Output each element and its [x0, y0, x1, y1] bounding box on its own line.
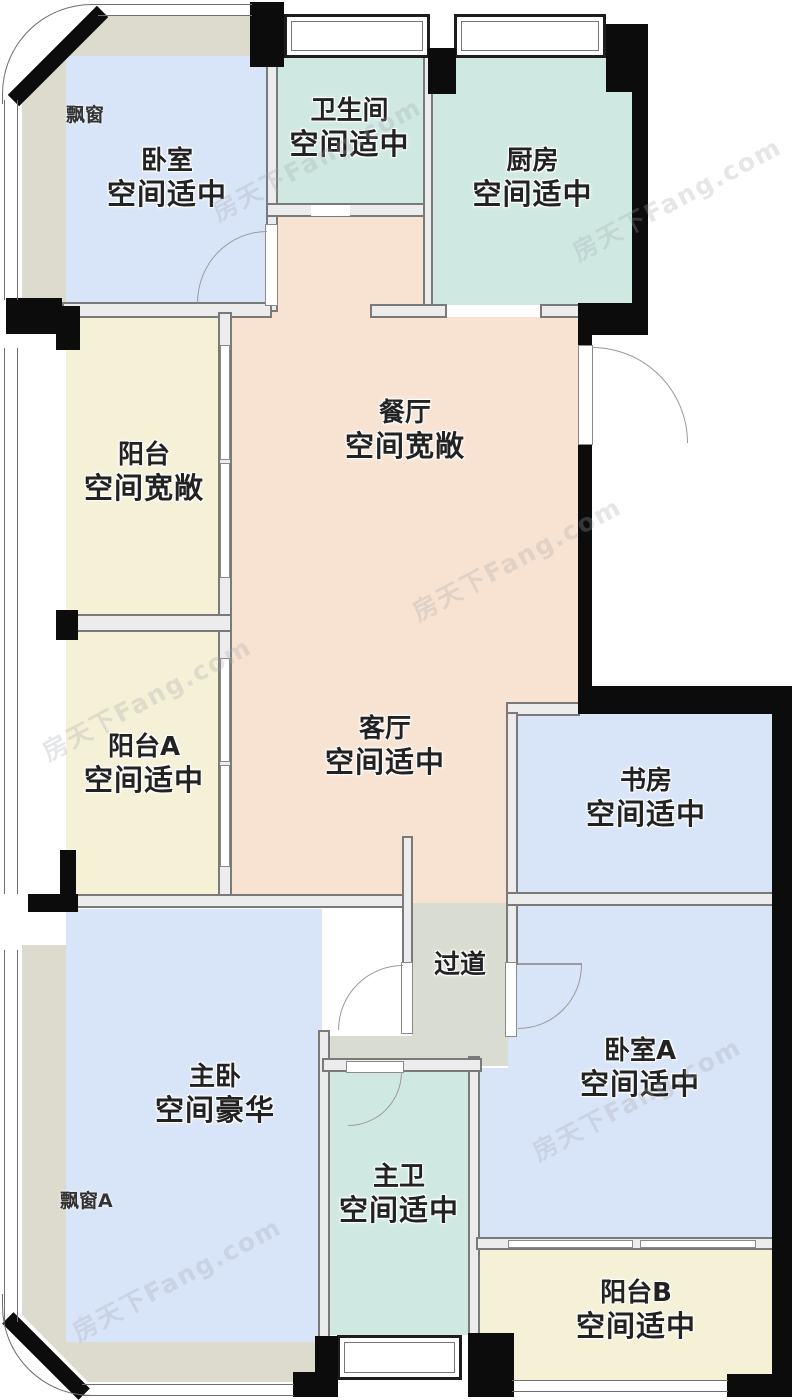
wall-segment-black — [578, 686, 792, 714]
room-name: 过道 — [408, 950, 512, 981]
wall-segment-black — [56, 610, 78, 640]
room-desc: 空间适中 — [514, 1309, 758, 1344]
window — [454, 14, 606, 58]
door-arc — [592, 347, 688, 443]
wall-segment — [62, 614, 232, 632]
room-name: 主卫 — [330, 1162, 468, 1193]
room-kitchen-label: 厨房 空间适中 — [433, 146, 632, 212]
room-desc: 空间适中 — [433, 177, 632, 212]
room-desc: 空间宽敞 — [250, 429, 560, 464]
wall-segment-black — [60, 850, 76, 898]
wall-segment — [62, 894, 405, 908]
wall-segment-black — [632, 60, 648, 310]
room-desc: 空间适中 — [66, 763, 222, 798]
window — [337, 1335, 462, 1380]
window-rail — [98, 4, 252, 16]
room-master-label: 主卧 空间豪华 — [90, 1062, 340, 1128]
room-name: 主卧 — [90, 1062, 340, 1093]
door-opening — [311, 205, 350, 216]
wall-segment — [62, 302, 272, 318]
room-living-label: 客厅 空间适中 — [240, 714, 530, 780]
wall-segment-black — [56, 306, 80, 350]
wall-segment-black — [772, 710, 792, 1252]
bay-window-a-note: 飘窗A — [60, 1186, 200, 1213]
room-desc: 空间豪华 — [90, 1093, 340, 1128]
bay-window-note: 飘窗 — [66, 100, 186, 127]
wall-segment-black — [727, 1374, 792, 1397]
room-name: 卧室 — [66, 146, 268, 177]
room-desc: 空间适中 — [500, 1067, 780, 1102]
room-master-bath-label: 主卫 空间适中 — [330, 1162, 468, 1228]
window — [640, 1240, 756, 1248]
room-desc: 空间适中 — [276, 127, 423, 162]
room-desc: 空间适中 — [330, 1193, 468, 1228]
wall-segment-black — [468, 1333, 514, 1397]
room-dining-label: 餐厅 空间宽敞 — [250, 398, 560, 464]
room-desc: 空间适中 — [240, 745, 530, 780]
room-name: 阳台 — [66, 440, 222, 471]
room-name: 餐厅 — [250, 398, 560, 429]
wall-segment-black — [250, 2, 284, 67]
wall-segment — [540, 304, 580, 318]
window-rail — [512, 1380, 728, 1392]
door-arc — [338, 965, 403, 1030]
floor-plan: 卧室 空间适中 卫生间 空间适中 厨房 空间适中 餐厅 空间宽敞 阳台 空间宽敞… — [0, 0, 796, 1400]
corner-window-arc — [2, 1294, 98, 1396]
wall-segment-black — [578, 441, 592, 700]
window — [508, 1240, 633, 1248]
room-name: 厨房 — [433, 146, 632, 177]
room-name: 卫生间 — [276, 96, 423, 127]
room-bathroom-label: 卫生间 空间适中 — [276, 96, 423, 162]
room-balcony-a-label: 阳台A 空间适中 — [66, 732, 222, 798]
room-name: 书房 — [518, 766, 774, 797]
wall-segment-black — [293, 1372, 322, 1397]
corner-window-arc — [2, 4, 102, 104]
door-opening — [447, 305, 540, 317]
room-study-label: 书房 空间适中 — [518, 766, 774, 832]
wall-segment — [506, 892, 774, 906]
room-balcony-label: 阳台 空间宽敞 — [66, 440, 222, 506]
wall-segment-black — [428, 48, 456, 94]
window-rail — [4, 950, 18, 1322]
window-rail — [4, 100, 18, 300]
room-hallway-label: 过道 — [408, 950, 512, 981]
wall-segment-black — [6, 298, 62, 334]
window-rail — [4, 348, 18, 894]
room-bedroom-label: 卧室 空间适中 — [66, 146, 268, 212]
wall-segment — [468, 1056, 480, 1345]
room-balcony-b-label: 阳台B 空间适中 — [514, 1278, 758, 1344]
window — [284, 14, 430, 58]
room-desc: 空间适中 — [66, 177, 268, 212]
room-name: 卧室A — [500, 1036, 780, 1067]
room-hallway-area — [412, 903, 508, 1066]
room-bedroom-a-label: 卧室A 空间适中 — [500, 1036, 780, 1102]
room-desc: 空间宽敞 — [66, 471, 222, 506]
room-name: 阳台A — [66, 732, 222, 763]
window-rail — [82, 1384, 294, 1396]
room-name: 客厅 — [240, 714, 530, 745]
room-name: 阳台B — [514, 1278, 758, 1309]
door-leaf — [578, 345, 593, 445]
wall-segment — [370, 304, 447, 318]
room-desc: 空间适中 — [518, 797, 774, 832]
